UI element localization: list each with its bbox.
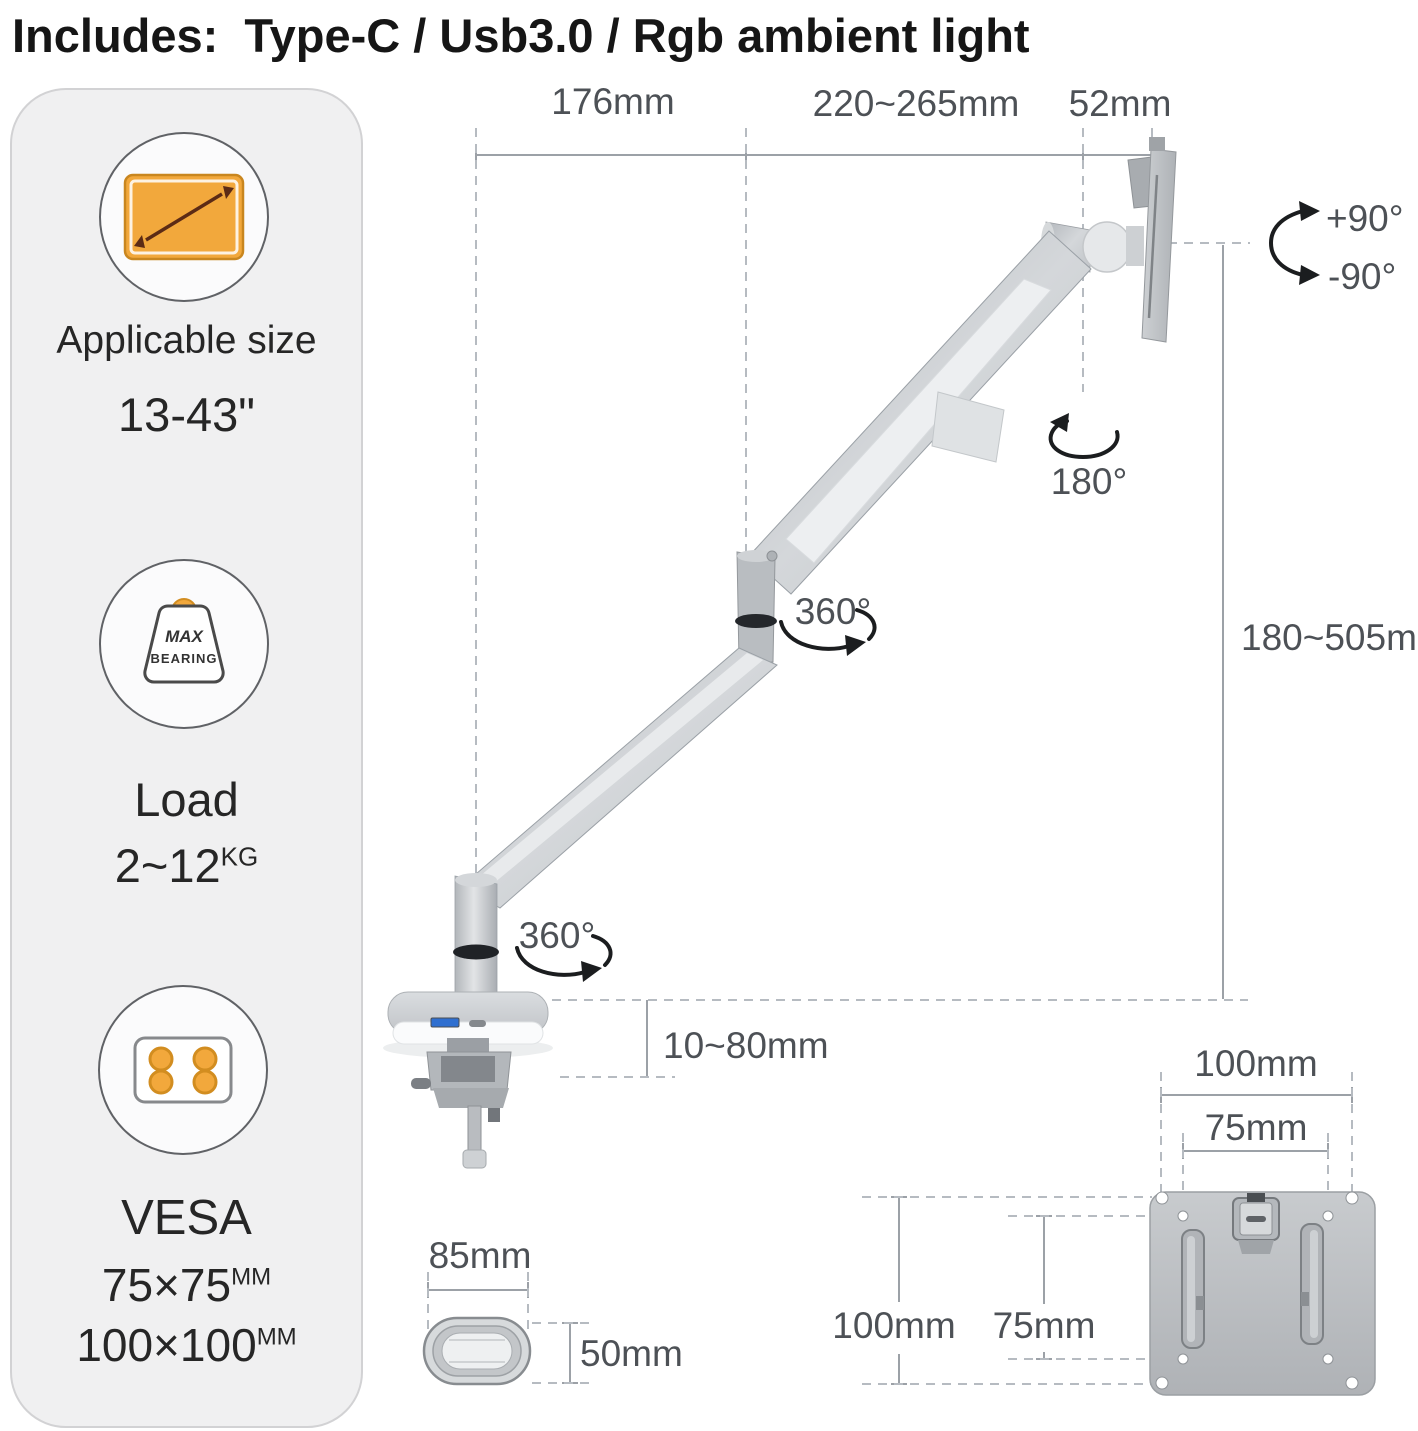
dim-vesa-height-inner: 75mm	[987, 1306, 1102, 1347]
monitor-arm	[383, 137, 1176, 1168]
quick-release-latch	[1233, 1193, 1279, 1254]
dim-base-depth: 50mm	[580, 1334, 683, 1375]
dim-vesa-width-inner: 75mm	[1205, 1108, 1308, 1149]
vesa-plate-rear-view	[1150, 1192, 1375, 1395]
usb-c-port	[469, 1020, 486, 1027]
pole	[455, 876, 497, 1002]
dim-base-width: 85mm	[429, 1236, 532, 1277]
dim-clamp-thickness: 10~80mm	[663, 1026, 829, 1067]
pole-rotation-ring	[453, 945, 499, 960]
dim-plate-offset: 52mm	[1069, 84, 1172, 125]
dim-swivel: 180°	[1051, 462, 1128, 503]
gas-spring-housing	[932, 392, 1004, 462]
dim-vesa-width-outer: 100mm	[1194, 1044, 1317, 1085]
tilt-arc	[1271, 211, 1303, 275]
rotation-arrows	[517, 201, 1320, 982]
elbow-rotation-ring	[735, 614, 777, 628]
dim-vesa-height-outer: 100mm	[826, 1306, 961, 1347]
base-oval-top-view	[424, 1318, 530, 1384]
dim-tilt-up: +90°	[1326, 199, 1404, 240]
dim-tilt-down: -90°	[1328, 257, 1396, 298]
ball-joint	[1083, 222, 1131, 272]
product-spec-image: Includes: Type-C / Usb3.0 / Rgb ambient …	[0, 0, 1418, 1431]
dim-arm-extension: 220~265mm	[813, 84, 1020, 125]
dim-height-range: 180~505mm	[1241, 618, 1418, 659]
desk-clamp	[411, 1038, 511, 1168]
usb-a-port	[431, 1018, 459, 1027]
dim-arm-reach: 176mm	[551, 82, 674, 123]
dim-rotate-upper: 360°	[795, 592, 872, 633]
monitor-arm-diagram	[0, 0, 1418, 1431]
dim-rotate-lower: 360°	[519, 916, 596, 957]
elbow-joint	[737, 552, 775, 662]
